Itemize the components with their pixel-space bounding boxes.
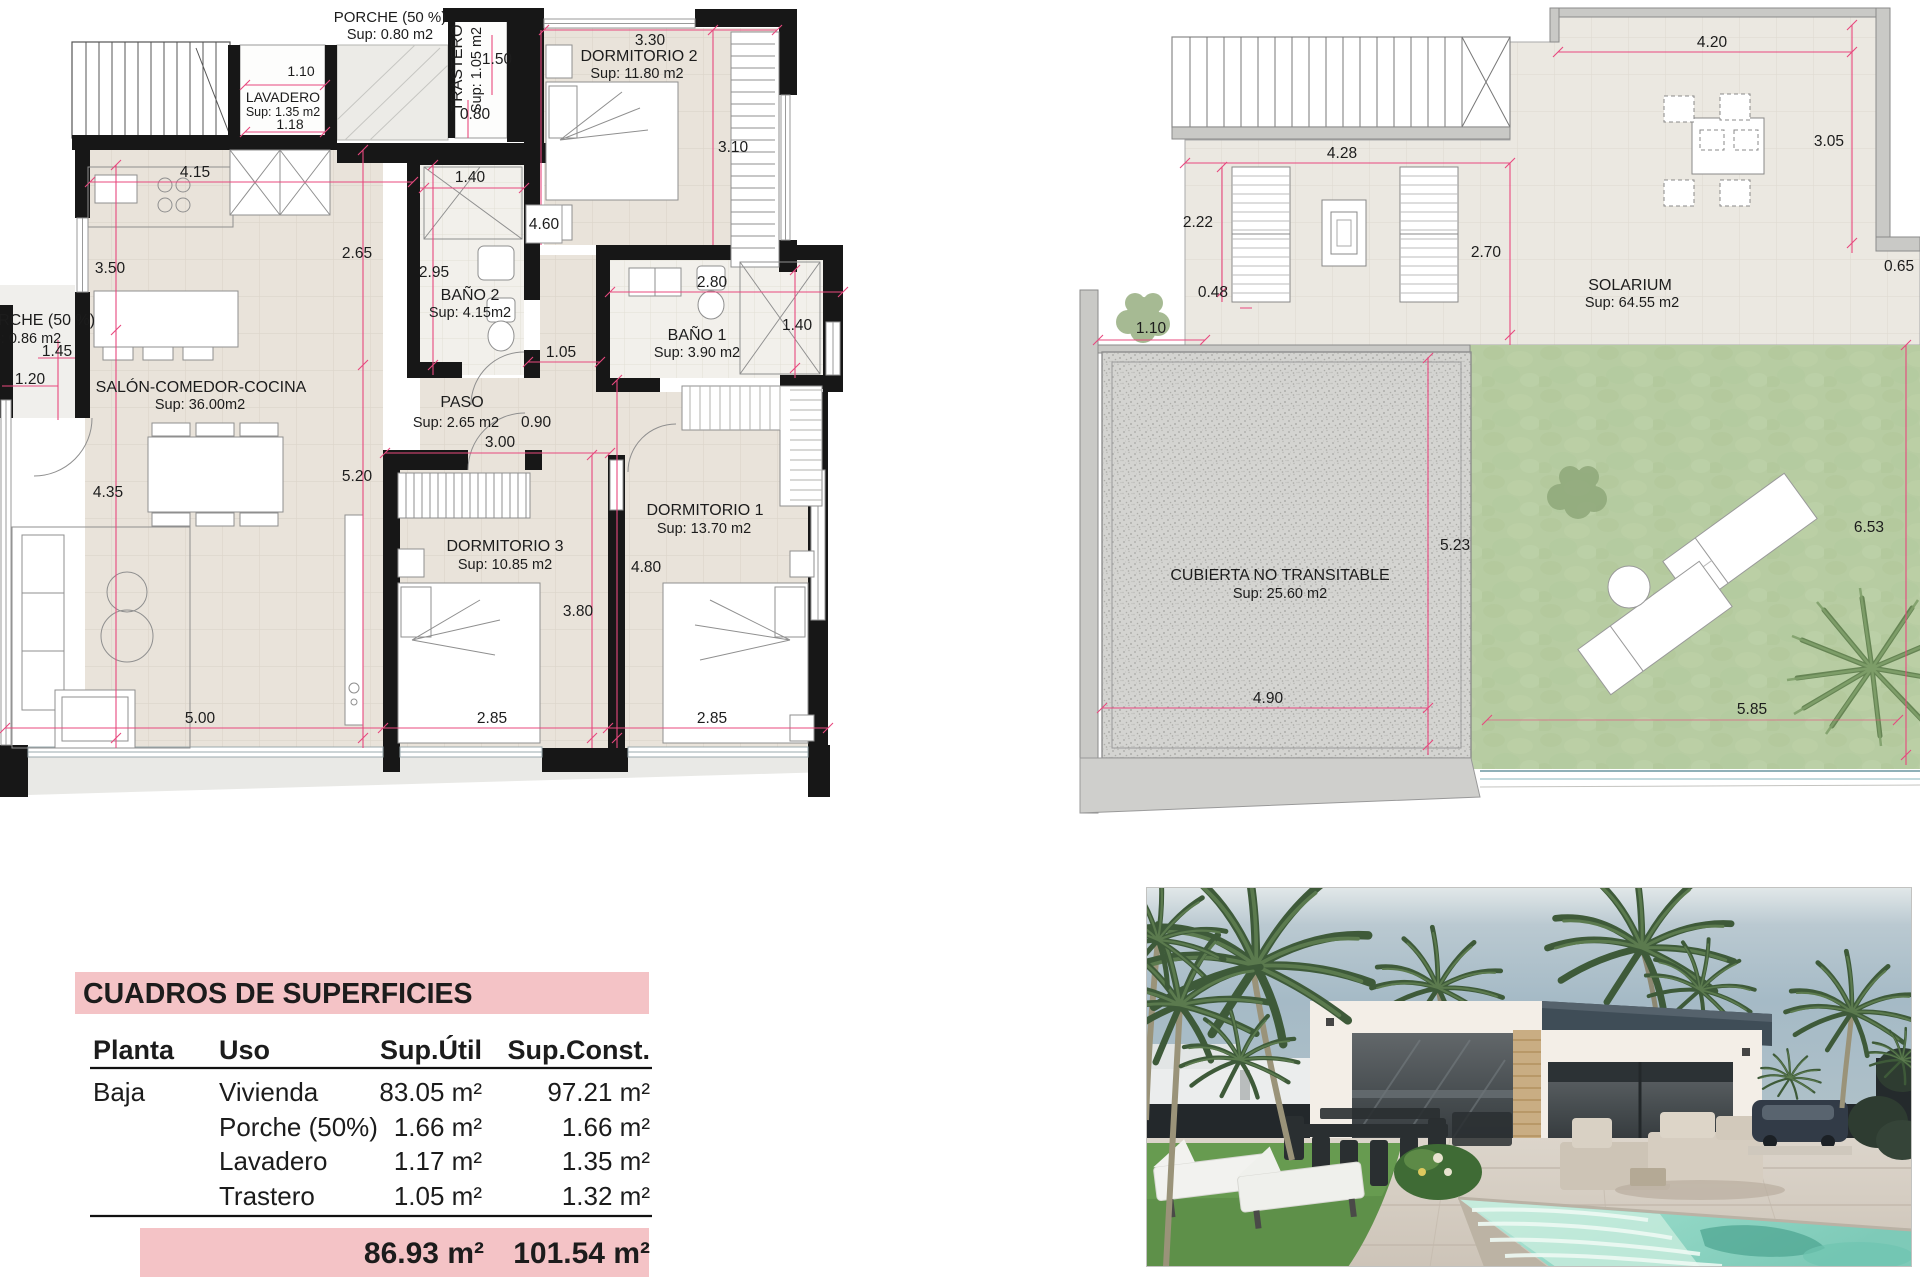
svg-text:1.32 m²: 1.32 m² [562, 1181, 650, 1211]
svg-text:DORMITORIO 1: DORMITORIO 1 [646, 502, 763, 519]
svg-text:1.40: 1.40 [455, 169, 486, 186]
svg-text:Sup: 36.00m2: Sup: 36.00m2 [155, 397, 245, 413]
svg-text:5.85: 5.85 [1737, 701, 1767, 718]
svg-text:4.28: 4.28 [1327, 145, 1357, 162]
svg-text:TRASTERO: TRASTERO [449, 24, 466, 111]
svg-text:Sup.Útil: Sup.Útil [380, 1034, 482, 1065]
svg-text:3.05: 3.05 [1814, 133, 1844, 150]
svg-text:97.21 m²: 97.21 m² [547, 1077, 650, 1107]
svg-text:PASO: PASO [440, 394, 483, 411]
svg-text:1.50: 1.50 [482, 51, 513, 68]
svg-text:1.20: 1.20 [15, 371, 46, 388]
svg-text:3.10: 3.10 [718, 139, 749, 156]
svg-text:LAVADERO: LAVADERO [246, 89, 320, 105]
svg-text:BAÑO 2: BAÑO 2 [441, 284, 500, 304]
svg-text:0.65: 0.65 [1884, 258, 1914, 275]
svg-text:Baja: Baja [93, 1077, 146, 1107]
svg-text:86.93 m²: 86.93 m² [364, 1237, 484, 1270]
svg-text:Vivienda: Vivienda [219, 1077, 319, 1107]
svg-text:1.40: 1.40 [782, 317, 813, 334]
svg-text:Uso: Uso [219, 1035, 270, 1065]
svg-text:2.80: 2.80 [697, 274, 728, 291]
svg-text:Planta: Planta [93, 1035, 175, 1065]
svg-text:Porche (50%): Porche (50%) [219, 1112, 378, 1142]
svg-text:1.66 m²: 1.66 m² [394, 1112, 482, 1142]
svg-text:PORCHE (50 %): PORCHE (50 %) [334, 9, 447, 26]
svg-text:1.10: 1.10 [1136, 320, 1167, 337]
svg-text:3.80: 3.80 [563, 603, 594, 620]
svg-text:1.35 m²: 1.35 m² [562, 1146, 650, 1176]
svg-text:2.65: 2.65 [342, 245, 372, 262]
svg-text:Sup: 25.60 m2: Sup: 25.60 m2 [1233, 586, 1327, 602]
svg-text:DORMITORIO 3: DORMITORIO 3 [446, 538, 563, 555]
svg-text:Lavadero: Lavadero [219, 1146, 327, 1176]
svg-text:Sup: 13.70 m2: Sup: 13.70 m2 [657, 521, 751, 537]
svg-text:5.20: 5.20 [342, 468, 373, 485]
svg-text:SOLARIUM: SOLARIUM [1588, 277, 1672, 294]
svg-text:0.80: 0.80 [460, 106, 491, 123]
svg-text:1.05 m²: 1.05 m² [394, 1181, 482, 1211]
svg-text:1.10: 1.10 [287, 63, 314, 79]
svg-text:2.85: 2.85 [697, 710, 727, 727]
svg-text:SALÓN-COMEDOR-COCINA: SALÓN-COMEDOR-COCINA [96, 377, 307, 396]
svg-text:2.95: 2.95 [419, 264, 449, 281]
svg-text:4.35: 4.35 [93, 484, 123, 501]
svg-text:1.45: 1.45 [42, 343, 72, 360]
svg-text:Sup: 2.65 m2: Sup: 2.65 m2 [413, 415, 499, 431]
svg-text:2.22: 2.22 [1183, 214, 1213, 231]
svg-text:1.18: 1.18 [276, 116, 303, 132]
svg-text:PORCHE (50 %): PORCHE (50 %) [0, 312, 95, 329]
svg-text:3.50: 3.50 [95, 260, 126, 277]
svg-text:Sup: 1.05 m2: Sup: 1.05 m2 [469, 27, 485, 113]
svg-text:Sup: 64.55 m2: Sup: 64.55 m2 [1585, 295, 1679, 311]
svg-text:Sup: 4.15m2: Sup: 4.15m2 [429, 305, 511, 321]
svg-text:4.60: 4.60 [529, 216, 560, 233]
svg-text:Sup.Const.: Sup.Const. [508, 1035, 651, 1065]
svg-text:2.85: 2.85 [477, 710, 507, 727]
svg-text:3.30: 3.30 [635, 32, 666, 49]
svg-text:6.53: 6.53 [1854, 519, 1884, 536]
svg-text:1.05: 1.05 [546, 344, 576, 361]
svg-text:3.00: 3.00 [485, 434, 516, 451]
svg-text:83.05 m²: 83.05 m² [379, 1077, 482, 1107]
svg-text:0.90: 0.90 [521, 414, 552, 431]
svg-text:CUBIERTA NO TRANSITABLE: CUBIERTA NO TRANSITABLE [1170, 567, 1389, 584]
svg-text:4.90: 4.90 [1253, 690, 1284, 707]
svg-text:Sup: 0.80 m2: Sup: 0.80 m2 [347, 27, 433, 43]
svg-text:Sup: 11.80 m2: Sup: 11.80 m2 [590, 66, 683, 82]
svg-text:4.80: 4.80 [631, 559, 662, 576]
svg-text:Sup: 3.90 m2: Sup: 3.90 m2 [654, 345, 740, 361]
svg-text:101.54 m²: 101.54 m² [513, 1237, 650, 1270]
svg-text:1.17 m²: 1.17 m² [394, 1146, 482, 1176]
svg-text:4.15: 4.15 [180, 164, 210, 181]
svg-text:CUADROS DE SUPERFICIES: CUADROS DE SUPERFICIES [83, 978, 473, 1010]
svg-text:5.00: 5.00 [185, 710, 216, 727]
svg-text:2.70: 2.70 [1471, 244, 1502, 261]
svg-text:DORMITORIO 2: DORMITORIO 2 [580, 48, 697, 65]
svg-text:BAÑO 1: BAÑO 1 [668, 324, 727, 344]
svg-text:1.66 m²: 1.66 m² [562, 1112, 650, 1142]
svg-text:Sup: 10.85 m2: Sup: 10.85 m2 [458, 557, 552, 573]
svg-text:Trastero: Trastero [219, 1181, 315, 1211]
svg-text:4.20: 4.20 [1697, 34, 1728, 51]
svg-text:5.23: 5.23 [1440, 537, 1470, 554]
svg-text:0.48: 0.48 [1198, 284, 1228, 301]
